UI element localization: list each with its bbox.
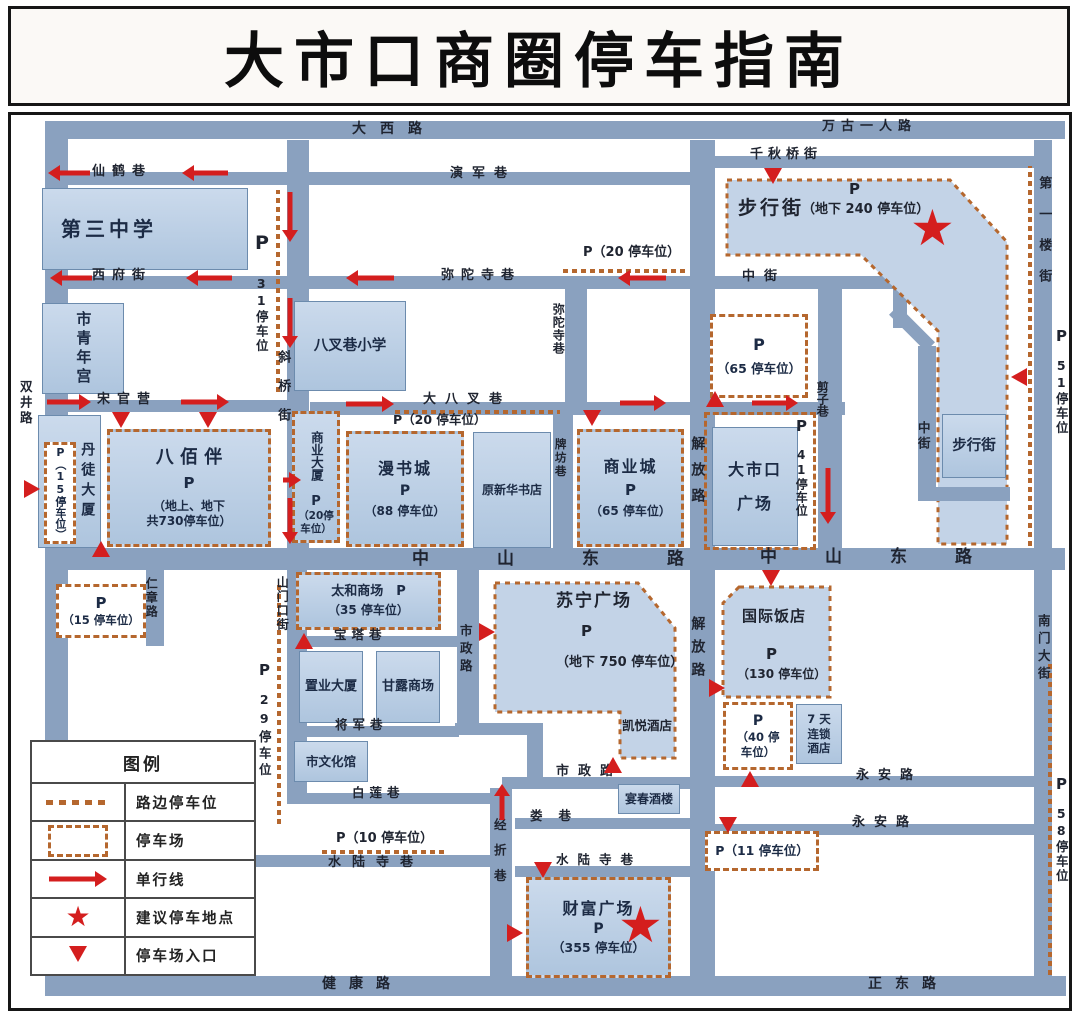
label-international-hotel-p: P — [766, 646, 777, 663]
parking-entrance-triangle — [709, 679, 728, 697]
label-pedestrian-street: 步行街 — [738, 198, 804, 219]
road-label-diyilou-street: 第一楼街 — [1036, 176, 1050, 300]
road-label-shanmenkou-street: 山门口街 — [275, 576, 288, 632]
zone-label: （20停 — [298, 510, 334, 523]
zone-label: 车位） — [741, 745, 776, 759]
parking-entrance-triangle — [199, 412, 217, 431]
road-label-yongan-road-1: 永安路 — [856, 769, 922, 783]
zone-label: 共730停车位） — [146, 514, 231, 529]
roadside-parking-label-29: 29停车位 — [257, 692, 271, 780]
parking-entrance-triangle — [764, 168, 782, 187]
parking-entrance-triangle — [24, 480, 43, 498]
dotted-box-icon — [48, 825, 108, 857]
parking-entrance-triangle — [719, 817, 737, 836]
one-way-arrow — [346, 270, 394, 286]
legend-row-one-way: 单行线 — [32, 861, 254, 899]
road-label-qianqiuqiao-street: 千秋桥街 — [750, 148, 822, 162]
legend-row-parking-lot: 停车场 — [32, 822, 254, 860]
one-way-arrow — [50, 270, 92, 286]
roadside-parking-label-58: 58停车位 — [1054, 806, 1068, 884]
parking-entrance-triangle — [507, 924, 526, 942]
roadside-parking-label-41: 41停车位 — [794, 448, 807, 517]
building-yanchun-restaurant: 宴春酒楼 — [618, 784, 680, 814]
road — [918, 487, 1010, 501]
roadside-parking-p-58: P — [1056, 776, 1067, 793]
road-label-wanguyiren-road: 万古一人路 — [822, 120, 917, 134]
zone-label: P — [625, 481, 636, 500]
zone-label: 丹徒大厦 — [78, 421, 96, 543]
parking-entrance-triangle — [741, 768, 759, 787]
road-label-dabacha-lane: 大八叉巷 — [423, 393, 511, 407]
parking-entrance-triangle — [762, 570, 780, 589]
one-way-arrow — [618, 270, 666, 286]
roadside-parking-label-51: 51停车位 — [1054, 358, 1068, 436]
one-way-arrow — [48, 165, 90, 181]
building-city-youth-palace: 市青年宫 — [42, 303, 124, 394]
road-label-nanmen-street: 南门大街 — [1036, 614, 1050, 684]
one-way-arrow — [620, 395, 666, 411]
zone-label: P — [753, 335, 765, 355]
road-label-shuilusi-lane-east: 水陆寺巷 — [556, 853, 642, 867]
road — [553, 415, 573, 550]
zone-label: P — [753, 713, 763, 731]
road-label-songguanying: 宋官营 — [97, 393, 157, 407]
road-label-zhongshandong-road-east: 中山东路 — [760, 548, 1020, 567]
one-way-arrow — [283, 472, 301, 488]
label-kaiyue-hotel: 凯悦酒店 — [622, 719, 672, 733]
roadside-parking-p-31: P — [255, 233, 269, 254]
parking-entrance-triangle — [1008, 368, 1027, 386]
one-way-arrow — [182, 165, 228, 181]
parking-entrance-triangle — [583, 410, 601, 429]
road-label-jianzi-lane: 剪子巷 — [815, 381, 828, 417]
road-label-jingzhe-lane: 经折巷 — [492, 818, 506, 895]
parking-zone-dantu-15: P（15停车位） — [44, 442, 76, 544]
roadside-dotted-line — [322, 850, 446, 854]
roadside-parking-p-51: P — [1056, 328, 1067, 345]
zone-label: P — [311, 494, 321, 510]
road-label-lou-lane: 娄巷 — [530, 809, 587, 823]
one-way-arrow — [346, 396, 394, 412]
legend-label: 停车场 — [126, 822, 254, 858]
roadside-parking-label-20a: P（20 停车位） — [583, 246, 680, 260]
building-bachaxiang-primary-school: 八叉巷小学 — [294, 301, 406, 391]
star-caifu-square: ★ — [618, 900, 663, 950]
building-former-xinhua-bookstore: 原新华书店 — [473, 432, 551, 548]
roadside-dotted-line — [1048, 662, 1052, 975]
parking-entrance-triangle — [112, 412, 130, 431]
road-label-jiefang-road-south: 解放路 — [689, 616, 704, 685]
road-label-zhongshandong-road-west: 中山东路 — [412, 550, 752, 569]
road-label-xifu-street: 西府街 — [92, 269, 152, 283]
parking-zone-zhongjie-65: P（65 停车位） — [710, 314, 808, 398]
zone-label: P（11 停车位） — [715, 843, 808, 859]
zone-label: 步行街 — [952, 437, 996, 455]
zone-label: 八叉巷小学 — [314, 337, 387, 355]
zone-label: 原新华书店 — [482, 483, 542, 498]
legend-label: 路边停车位 — [126, 784, 254, 820]
one-way-arrow — [282, 192, 298, 242]
roadside-parking-label-31: 31停车位 — [254, 276, 268, 354]
road-label-shuangjing-road: 双井路 — [18, 380, 32, 427]
zone-label: P — [593, 921, 603, 939]
zone-label: 宴春酒楼 — [625, 792, 673, 807]
road-label-xianhe-lane: 仙鹤巷 — [92, 165, 152, 179]
zone-label: 八 佰 伴 — [156, 447, 223, 470]
one-way-arrow — [494, 784, 510, 820]
label-pedestrian-street-p: P — [849, 181, 860, 198]
zone-label: P — [96, 594, 107, 613]
legend-label: 单行线 — [126, 861, 254, 897]
parking-building-manshucheng: 漫书城P（88 停车位） — [346, 431, 464, 547]
roadside-parking-p-41: P — [796, 418, 807, 435]
road-label-mituosi-lane-v: 弥陀寺巷 — [551, 303, 564, 355]
building-no3-middle-school: 第三中学 — [42, 188, 248, 270]
road — [565, 289, 587, 408]
road-label-xieqiao-street: 斜桥街 — [275, 350, 289, 437]
roadside-parking-label-20b: P（20 停车位） — [393, 413, 486, 427]
road-label-yanjun-lane: 演军巷 — [450, 167, 516, 181]
red-star-icon: ★ — [65, 903, 90, 931]
road-label-zhong-street-v: 中街 — [916, 421, 930, 452]
zone-label: （88 停车位） — [365, 504, 446, 519]
zone-label: 酒店 — [808, 741, 831, 755]
road-label-bailian-lane: 白莲巷 — [352, 786, 405, 800]
label-suning-plaza: 苏宁广场 — [556, 592, 632, 611]
road — [527, 728, 543, 780]
entrance-triangle-icon — [69, 946, 87, 965]
road — [700, 276, 905, 289]
one-way-arrow-icon — [49, 871, 107, 887]
one-way-arrow — [752, 395, 798, 411]
building-zhiye-building: 置业大厦 — [299, 651, 363, 723]
building-pedestrian-street: 步行街 — [942, 414, 1006, 478]
title-box: 大市口商圈停车指南 — [8, 6, 1070, 106]
road-label-mituosi-lane: 弥陀寺巷 — [441, 269, 521, 283]
parking-building-shangyecheng: 商业城P（65 停车位） — [577, 429, 684, 547]
label-suning-p: P — [581, 623, 592, 640]
roadside-dotted-line — [1028, 166, 1032, 546]
zone-label: 商业大厦 — [308, 418, 324, 494]
legend-label: 停车场入口 — [126, 938, 254, 974]
legend-row-entrance: 停车场入口 — [32, 938, 254, 974]
zone-label: 置业大厦 — [305, 679, 357, 695]
zone-label: （地上、地下 — [153, 499, 225, 514]
star-pedestrian-street: ★ — [910, 203, 955, 253]
building-ganlu-market: 甘露商场 — [376, 651, 440, 723]
road-label-shizheng-road-v: 市政路 — [458, 624, 472, 677]
zone-label: P — [184, 474, 195, 493]
roadside-parking-label-10: P（10 停车位） — [336, 832, 433, 846]
road-label-jiefang-road-north: 解放路 — [689, 436, 704, 514]
parking-zone-11: P（11 停车位） — [705, 831, 819, 871]
parking-entrance-triangle — [534, 862, 552, 881]
parking-entrance-triangle — [92, 538, 110, 557]
road-label-daxi-road: 大西路 — [352, 122, 436, 137]
one-way-arrow — [282, 298, 298, 348]
one-way-arrow — [47, 394, 91, 410]
building-7days-inn: 7 天连锁酒店 — [796, 704, 842, 764]
zone-label: （15 停车位） — [62, 613, 140, 627]
parking-guide-map: 大市口商圈停车指南 图例 路边停车位 停车场 单行线 ★ 建议停车地点 停车场入… — [0, 0, 1080, 1016]
zone-label: 太和商场 P — [331, 584, 406, 600]
zone-label: 甘露商场 — [382, 679, 434, 695]
label-suning-capacity: （地下 750 停车位） — [556, 656, 683, 670]
zone-label: 7 天 — [807, 712, 831, 726]
road-label-baota-lane: 宝塔巷 — [334, 628, 387, 642]
zone-label: 市青年宫 — [74, 309, 93, 389]
legend-row-suggested-spot: ★ 建议停车地点 — [32, 899, 254, 937]
road-label-yongan-road-2: 永安路 — [852, 816, 918, 830]
zone-label: 漫书城 — [378, 459, 432, 479]
zone-label: （65 停车位） — [717, 361, 801, 377]
parking-entrance-triangle — [706, 388, 724, 407]
page-title: 大市口商圈停车指南 — [224, 13, 854, 100]
one-way-arrow — [181, 394, 229, 410]
label-international-hotel: 国际饭店 — [742, 608, 806, 625]
one-way-arrow — [282, 498, 298, 544]
zone-label: P（15停车位） — [53, 446, 67, 540]
zone-label: （35 停车位） — [328, 603, 409, 618]
road-label-shuilusi-lane-west: 水陆寺巷 — [328, 856, 424, 870]
zone-label: 商业城 — [603, 457, 657, 477]
parking-entrance-triangle — [295, 630, 313, 649]
parking-zone-renzhang-15: P（15 停车位） — [56, 584, 146, 638]
road-label-zhong-street: 中街 — [742, 270, 786, 284]
parking-building-taihe-market: 太和商场 P（35 停车位） — [296, 572, 441, 630]
zone-label: 第三中学 — [61, 217, 157, 242]
roadside-parking-p-29: P — [259, 662, 270, 679]
legend-title: 图例 — [32, 742, 254, 784]
zone-label: 车位） — [300, 523, 332, 536]
parking-entrance-triangle — [604, 754, 622, 773]
road-label-jiankang-road: 健康路 — [322, 977, 403, 992]
zone-label: （40 停 — [736, 730, 779, 744]
building-city-cultural-center: 市文化馆 — [294, 741, 368, 782]
road-label-jiangjun-lane: 将军巷 — [335, 718, 388, 732]
zone-label: （65 停车位） — [590, 504, 671, 519]
zone-label: 市文化馆 — [306, 754, 356, 770]
parking-entrance-triangle — [479, 623, 498, 641]
parking-building-babaiban: 八 佰 伴P（地上、地下共730停车位） — [107, 429, 271, 547]
one-way-arrow — [820, 468, 836, 524]
zone-label: P — [400, 483, 410, 501]
road-label-renzhang-road: 仁章路 — [144, 577, 157, 619]
dashed-line-icon — [46, 800, 110, 805]
one-way-arrow — [186, 270, 232, 286]
zone-label: 连锁 — [808, 727, 831, 741]
road-label-zhengdong-road: 正东路 — [868, 977, 949, 992]
legend-row-roadside: 路边停车位 — [32, 784, 254, 822]
road-label-paifang-lane: 牌坊巷 — [554, 438, 567, 479]
label-international-hotel-capacity: （130 停车位） — [737, 668, 826, 681]
legend: 图例 路边停车位 停车场 单行线 ★ 建议停车地点 停车场入口 — [30, 740, 256, 976]
legend-label: 建议停车地点 — [126, 899, 254, 935]
parking-zone-40: P（40 停车位） — [723, 702, 793, 770]
